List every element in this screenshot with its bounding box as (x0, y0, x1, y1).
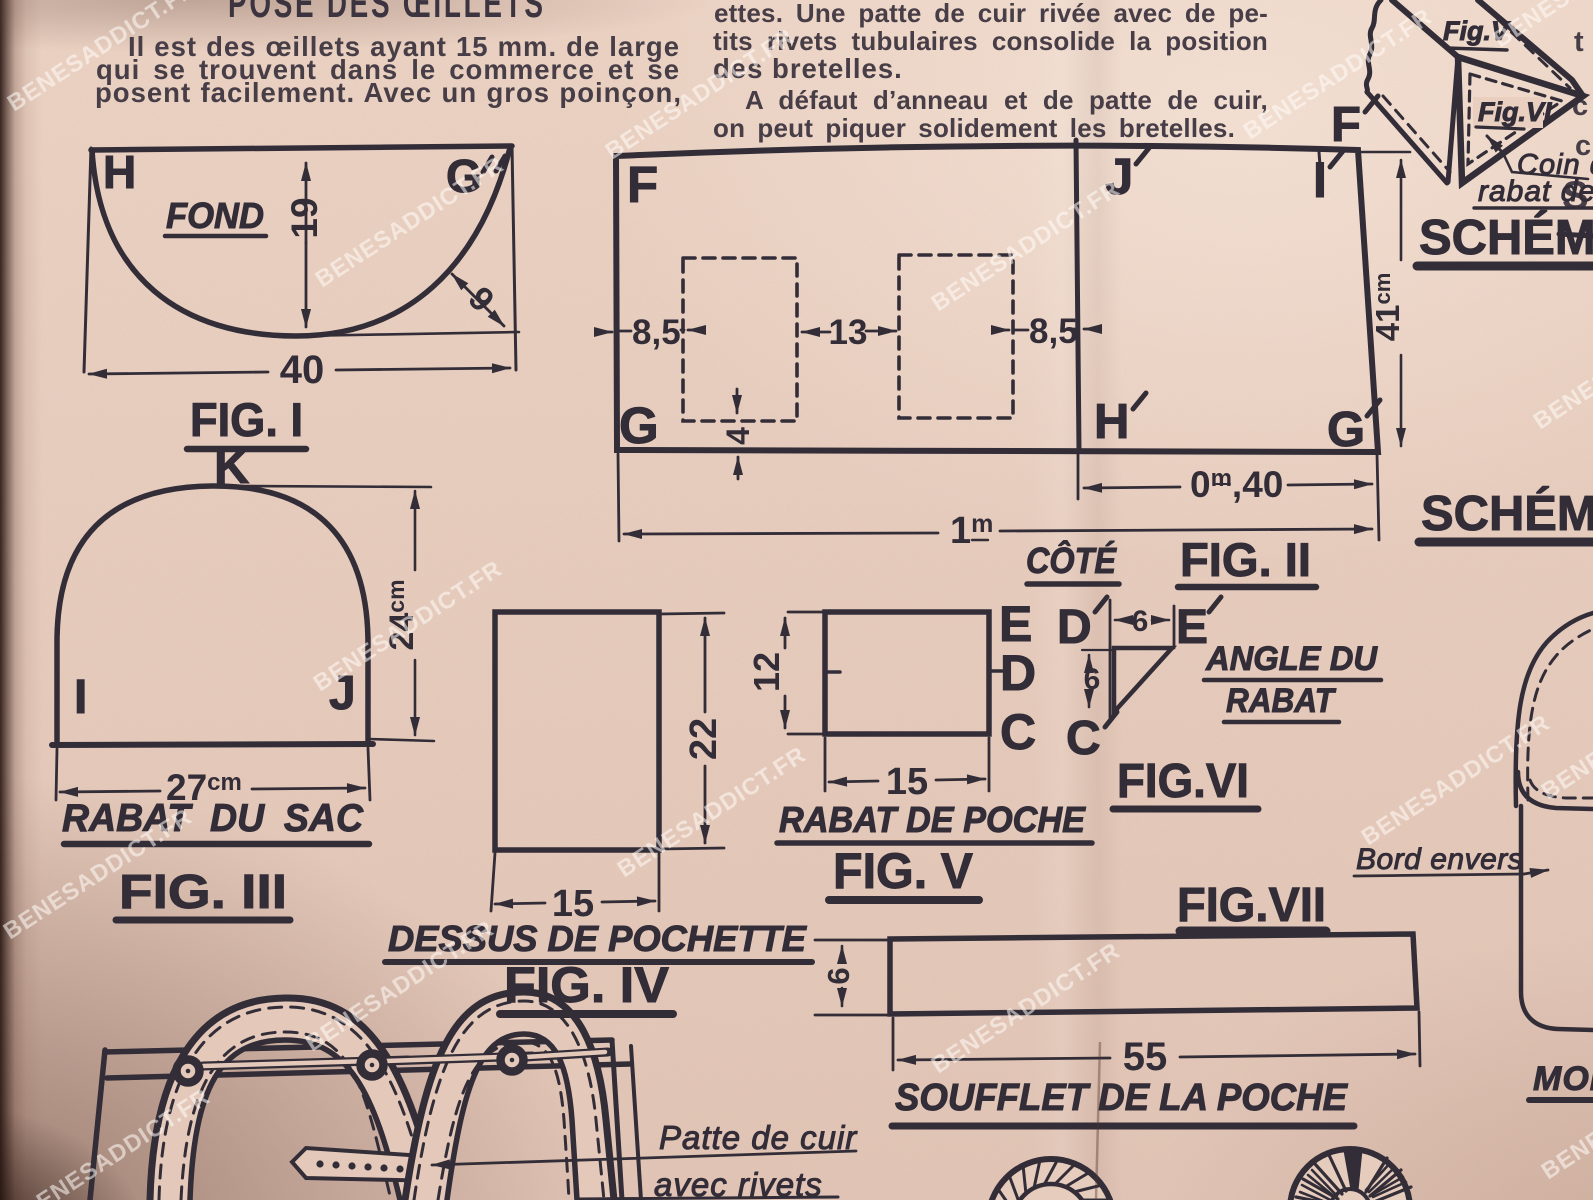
svg-text:E: E (999, 596, 1032, 652)
svg-text:C: C (1000, 704, 1036, 760)
svg-text:55: 55 (1123, 1035, 1168, 1079)
svg-text:F: F (1331, 98, 1361, 152)
svg-text:22: 22 (683, 718, 725, 760)
svg-text:I: I (74, 671, 87, 724)
svg-text:FIG.VII: FIG.VII (1177, 879, 1326, 932)
svg-text:FIG. III: FIG. III (119, 866, 287, 919)
svg-text:40: 40 (280, 348, 325, 392)
svg-text:19: 19 (284, 197, 325, 238)
svg-text:D: D (1000, 645, 1036, 701)
svg-text:C: C (1066, 712, 1101, 765)
svg-text:12: 12 (746, 652, 787, 692)
svg-text:ANGLE DU: ANGLE DU (1205, 640, 1378, 678)
svg-text:6: 6 (821, 967, 856, 984)
svg-text:H: H (1094, 395, 1129, 449)
svg-text:0m,40: 0m,40 (1190, 464, 1283, 505)
svg-text:8,5: 8,5 (632, 313, 681, 352)
svg-text:Fig.VI: Fig.VI (1478, 97, 1552, 127)
svg-text:MON: MON (1533, 1060, 1593, 1098)
svg-text:F: F (627, 156, 658, 213)
svg-text:FIG. II: FIG. II (1180, 533, 1311, 586)
svg-text:FOND: FOND (166, 195, 264, 236)
svg-text:Bord envers: Bord envers (1356, 843, 1523, 876)
svg-text:FIG. V: FIG. V (833, 843, 974, 899)
svg-text:G: G (1327, 403, 1365, 457)
svg-text:8,5: 8,5 (1029, 312, 1078, 351)
svg-text:SOUFFLET DE LA POCHE: SOUFFLET DE LA POCHE (895, 1077, 1349, 1119)
svg-text:SCHÉMA: SCHÉMA (1419, 211, 1593, 265)
svg-text:4: 4 (720, 427, 756, 445)
svg-text:avec rivets: avec rivets (654, 1166, 823, 1200)
svg-text:D: D (1057, 601, 1092, 654)
svg-text:rabat de: rabat de (1478, 175, 1593, 208)
svg-text:G: G (619, 397, 659, 454)
svg-text:CÔTÉ: CÔTÉ (1026, 539, 1117, 581)
svg-text:6: 6 (1084, 663, 1101, 696)
svg-text:SCHÉMA: SCHÉMA (1421, 487, 1593, 541)
svg-text:RABAT DU SAC: RABAT DU SAC (62, 797, 364, 840)
svg-text:15: 15 (886, 761, 928, 803)
svg-text:13: 13 (829, 313, 868, 352)
svg-text:FIG. IV: FIG. IV (504, 957, 670, 1013)
svg-text:6: 6 (1132, 605, 1149, 638)
svg-text:H: H (103, 146, 136, 198)
svg-text:E: E (1176, 601, 1208, 654)
svg-text:RABAT DE POCHE: RABAT DE POCHE (779, 799, 1086, 840)
svg-text:RABAT: RABAT (1226, 682, 1337, 720)
svg-text:Patte de cuir: Patte de cuir (659, 1119, 858, 1156)
svg-text:FIG.VI: FIG.VI (1117, 755, 1249, 808)
svg-text:FIG. I: FIG. I (190, 393, 303, 446)
